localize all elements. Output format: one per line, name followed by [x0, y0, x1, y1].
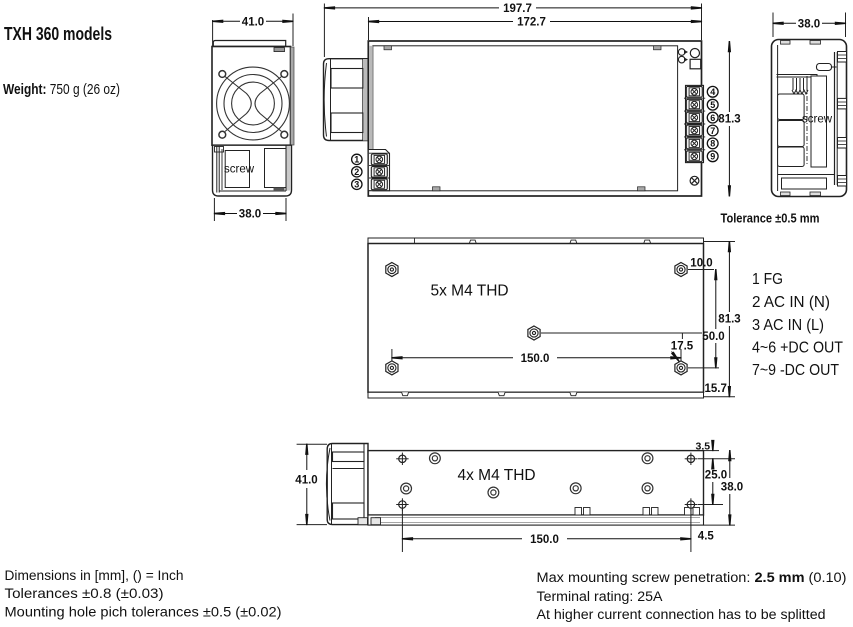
svg-text:Mounting hole pich tolerances: Mounting hole pich tolerances ±0.5 (±0.0…	[5, 604, 282, 620]
svg-text:Dimensions in [mm], () = Inch: Dimensions in [mm], () = Inch	[5, 567, 184, 583]
svg-text:17.5: 17.5	[671, 341, 694, 353]
svg-text:38.0: 38.0	[721, 482, 743, 494]
svg-text:25.0: 25.0	[705, 470, 727, 482]
svg-text:50.0: 50.0	[702, 331, 724, 343]
svg-text:4~6 +DC OUT: 4~6 +DC OUT	[752, 340, 843, 357]
svg-text:4x M4 THD: 4x M4 THD	[458, 467, 536, 484]
svg-text:15.7: 15.7	[705, 383, 727, 395]
svg-text:3: 3	[354, 180, 359, 190]
svg-text:197.7: 197.7	[503, 3, 532, 15]
svg-text:TXH 360 models: TXH 360 models	[4, 24, 112, 44]
svg-text:1: 1	[354, 155, 359, 165]
svg-text:81.3: 81.3	[718, 114, 740, 126]
svg-text:10.0: 10.0	[690, 258, 712, 270]
svg-text:9: 9	[710, 152, 715, 162]
svg-text:8: 8	[710, 139, 715, 149]
svg-text:5x M4 THD: 5x M4 THD	[431, 283, 509, 300]
svg-text:7: 7	[710, 126, 715, 136]
svg-text:41.0: 41.0	[242, 17, 264, 29]
svg-text:screw: screw	[224, 164, 255, 176]
svg-text:At higher current connection h: At higher current connection has to be s…	[537, 607, 826, 623]
svg-text:2: 2	[354, 167, 359, 177]
svg-text:172.7: 172.7	[517, 17, 546, 29]
svg-text:1 FG: 1 FG	[752, 271, 783, 288]
svg-text:150.0: 150.0	[521, 353, 550, 365]
svg-text:Max mounting screw penetration: Max mounting screw penetration: 2.5 mm (…	[537, 570, 847, 586]
svg-text:81.3: 81.3	[718, 314, 740, 326]
svg-text:Tolerances ±0.8 (±0.03): Tolerances ±0.8 (±0.03)	[5, 585, 164, 601]
svg-text:Tolerance ±0.5 mm: Tolerance ±0.5 mm	[721, 212, 820, 226]
svg-text:4: 4	[710, 87, 715, 97]
svg-text:6: 6	[710, 113, 715, 123]
svg-text:38.0: 38.0	[798, 19, 820, 31]
svg-text:7~9 -DC OUT: 7~9 -DC OUT	[752, 362, 839, 379]
svg-text:screw: screw	[802, 114, 833, 126]
svg-text:4.5: 4.5	[698, 531, 715, 543]
svg-text:150.0: 150.0	[530, 534, 559, 546]
svg-text:2 AC IN (N): 2 AC IN (N)	[752, 294, 830, 311]
svg-text:3.5: 3.5	[696, 441, 711, 453]
svg-text:Terminal rating: 25A: Terminal rating: 25A	[537, 589, 664, 605]
svg-text:3 AC IN (L): 3 AC IN (L)	[752, 317, 824, 334]
svg-text:Weight: 750 g (26 oz): Weight: 750 g (26 oz)	[3, 81, 120, 98]
svg-text:38.0: 38.0	[239, 209, 261, 221]
svg-text:41.0: 41.0	[295, 475, 317, 487]
svg-text:5: 5	[710, 100, 715, 110]
